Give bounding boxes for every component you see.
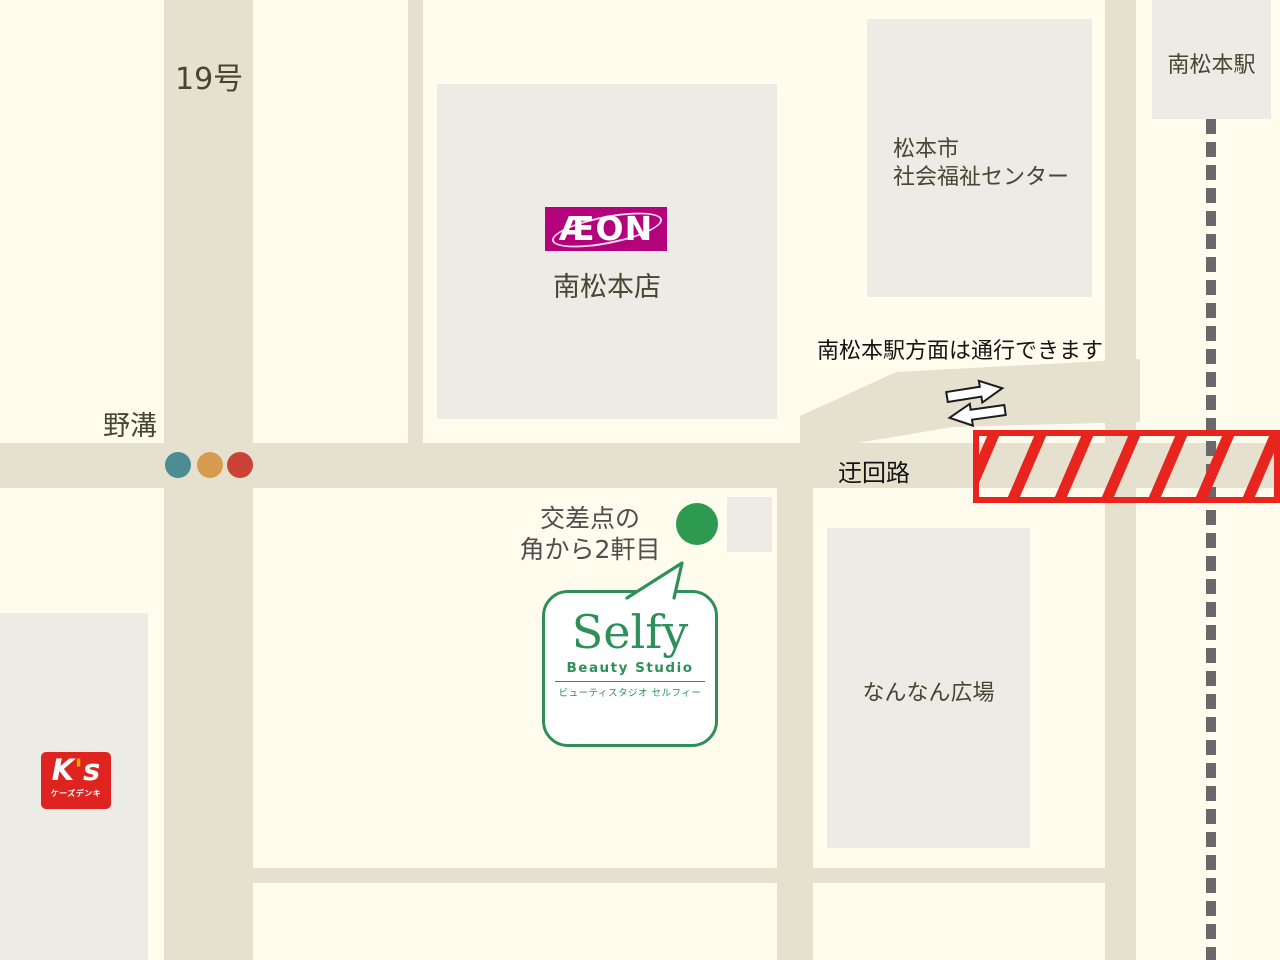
corner-small-building <box>727 497 772 552</box>
road-bottom-horizontal <box>253 868 1105 883</box>
ks-logo-text: K's <box>41 752 111 788</box>
shop-location-marker <box>676 503 718 545</box>
welfare-center-label-line2: 社会福祉センター <box>893 159 1069 191</box>
signal-dot-teal <box>165 452 191 478</box>
signal-dot-orange <box>197 452 223 478</box>
aeon-store-name: 南松本店 <box>437 265 777 304</box>
aeon-logo: ÆON <box>545 207 667 251</box>
selfy-subtitle: Beauty Studio <box>545 660 715 676</box>
station-label: 南松本駅 <box>1152 47 1271 79</box>
nomizo-intersection-label: 野溝 <box>103 404 157 443</box>
road-mid-vertical <box>777 488 813 960</box>
ks-denki-logo: K's ケーズデンキ <box>41 752 111 809</box>
selfy-name: Selfy <box>545 609 715 655</box>
road-narrow-top <box>408 0 423 443</box>
plaza-label: なんなん広場 <box>827 675 1030 707</box>
selfy-kana: ビューティスタジオ セルフィー <box>545 685 715 699</box>
access-map: 松本市 社会福祉センター 南松本駅 なんなん広場 ÆON 南松本店 K's ケー… <box>0 0 1280 960</box>
ks-denki-name: ケーズデンキ <box>41 788 111 799</box>
selfy-divider <box>555 681 705 682</box>
ks-apostrophe: ' <box>74 753 83 787</box>
passage-note: 南松本駅方面は通行できます <box>817 333 1103 365</box>
railway-dashed-line <box>1206 119 1216 960</box>
route19-label: 19号 <box>175 54 243 98</box>
road-main-horizontal <box>0 443 1280 488</box>
signal-dot-red <box>227 452 253 478</box>
road-right-vertical <box>1105 0 1136 960</box>
direction-note-line2: 角から2軒目 <box>510 534 670 565</box>
aeon-building <box>437 84 777 419</box>
selfy-speech-bubble: Selfy Beauty Studio ビューティスタジオ セルフィー <box>542 590 718 747</box>
direction-note: 交差点の 角から2軒目 <box>510 503 670 565</box>
direction-note-line1: 交差点の <box>510 503 670 534</box>
arrow-left-icon <box>948 399 1007 429</box>
arrow-right-icon <box>945 377 1004 407</box>
detour-label: 迂回路 <box>838 453 910 488</box>
road-diagonal-to-station <box>800 359 1140 443</box>
